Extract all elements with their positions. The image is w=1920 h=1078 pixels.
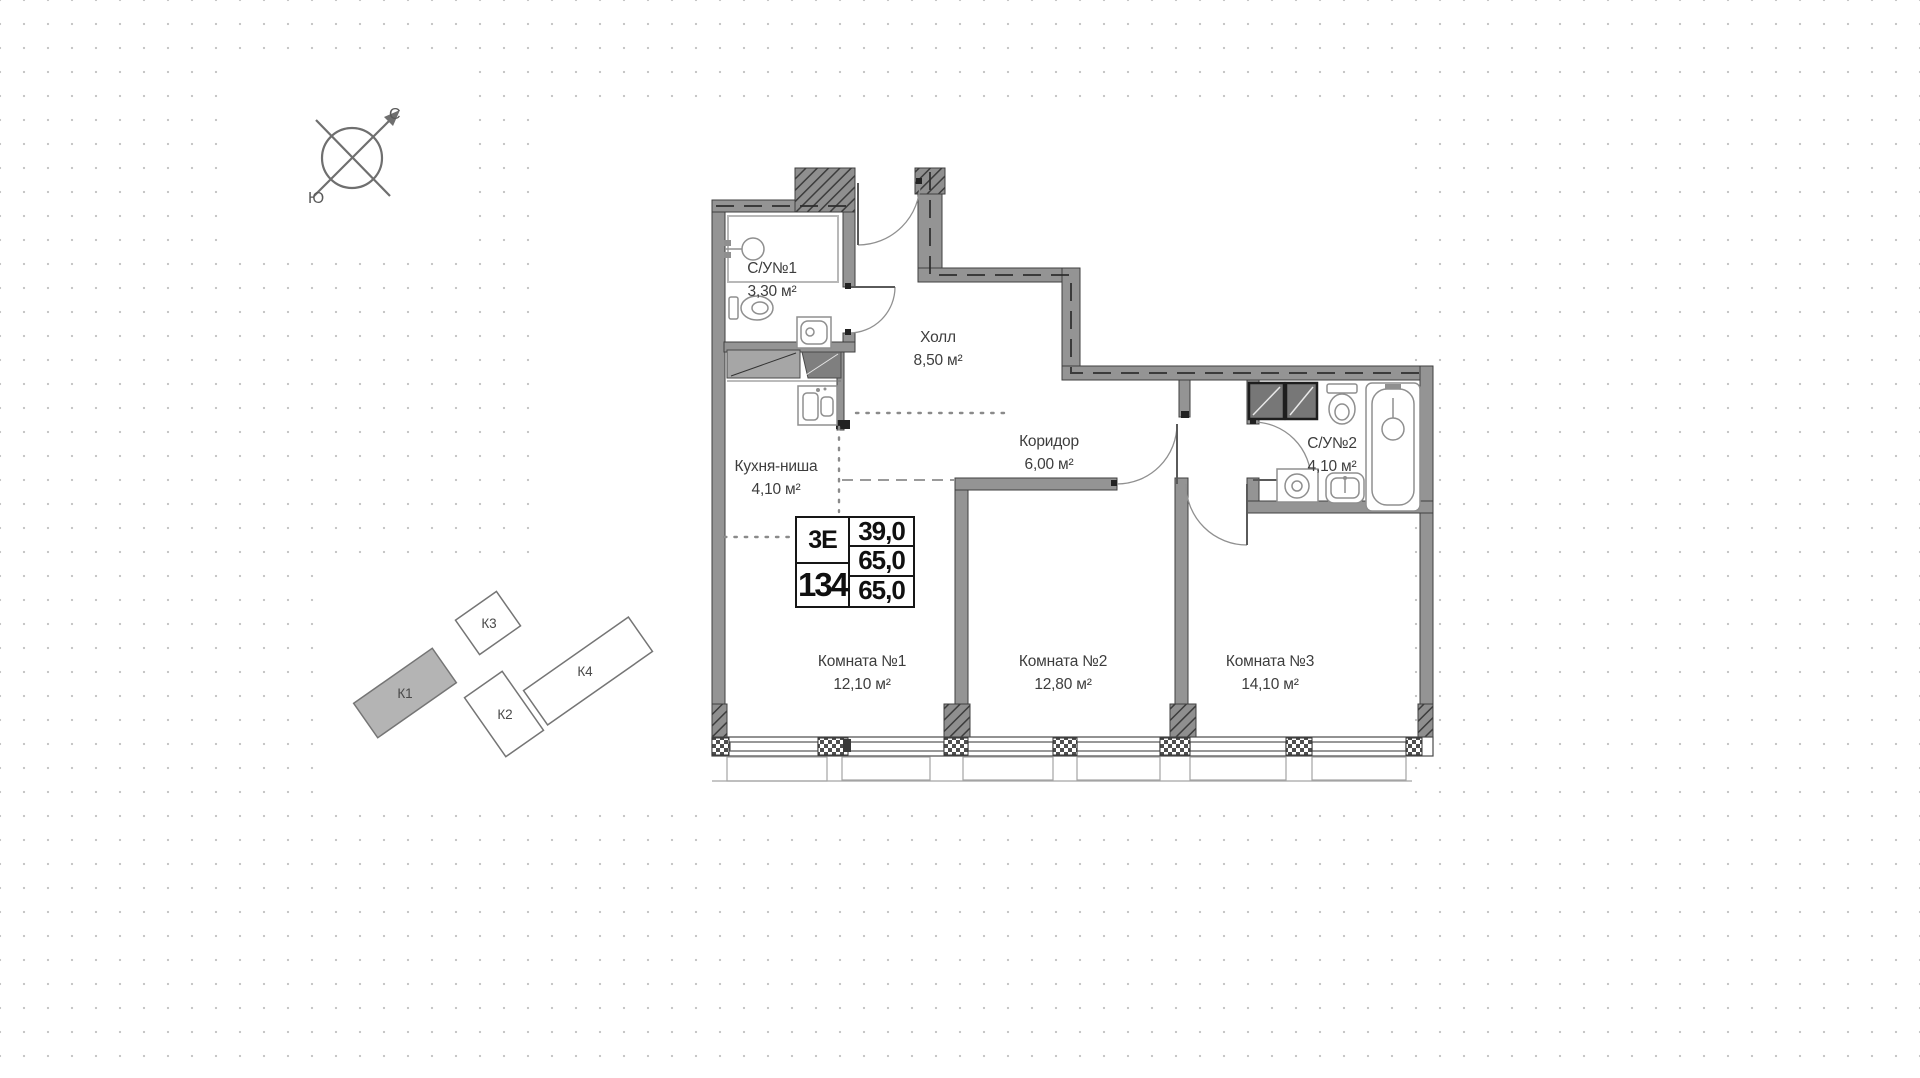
plan-drawing: С Ю К1 К2 К3 К4 bbox=[0, 0, 1920, 1078]
compass-rose bbox=[314, 110, 400, 196]
building-k1-label: К1 bbox=[397, 686, 412, 701]
balcony-door-threshold bbox=[843, 739, 851, 752]
window-pier-checker bbox=[944, 738, 968, 755]
spec-value-bottom: 65,0 bbox=[850, 575, 913, 604]
room-area: 8,50 м² bbox=[914, 349, 963, 372]
room3-door-arc bbox=[1186, 484, 1247, 545]
room-label-room3: Комната №3 14,10 м² bbox=[1226, 650, 1314, 697]
room-name: Холл bbox=[914, 326, 963, 349]
window-room2-left bbox=[968, 742, 1053, 751]
room-name: Комната №2 bbox=[1019, 650, 1107, 673]
building-k2-label: К2 bbox=[497, 707, 512, 722]
wall-partition-room2-room3 bbox=[1175, 478, 1188, 737]
window-pier-checker bbox=[1286, 738, 1312, 755]
spec-left-column: 3Е 134 bbox=[797, 518, 850, 606]
room-name: С/У№2 bbox=[1307, 432, 1357, 455]
room-area: 14,10 м² bbox=[1226, 673, 1314, 696]
toilet2-icon bbox=[1327, 384, 1357, 424]
room-label-hall: Холл 8,50 м² bbox=[914, 326, 963, 373]
building-k4-label: К4 bbox=[577, 664, 593, 679]
room-name: Кухня-ниша bbox=[735, 455, 818, 478]
wall-corridor-bottom bbox=[955, 478, 1117, 490]
room-label-kitchen-niche: Кухня-ниша 4,10 м² bbox=[735, 455, 818, 502]
window-room1-right bbox=[848, 742, 944, 751]
bottom-facade bbox=[712, 737, 1433, 781]
balcony-outline bbox=[963, 757, 1053, 780]
room-area: 12,10 м² bbox=[818, 673, 906, 696]
room-area: 12,80 м² bbox=[1019, 673, 1107, 696]
window-room3-left bbox=[1190, 742, 1286, 751]
wall-left-outer bbox=[712, 200, 725, 745]
room-area: 6,00 м² bbox=[1019, 453, 1079, 476]
room-area: 4,10 м² bbox=[1307, 455, 1357, 478]
window-pier-checker bbox=[1053, 738, 1077, 755]
window-room1-left bbox=[730, 742, 818, 751]
bathtub-icon bbox=[1366, 383, 1420, 511]
entrance-door-arc bbox=[858, 183, 920, 245]
spec-right-column: 39,0 65,0 65,0 bbox=[850, 518, 913, 606]
compass-south-label: Ю bbox=[308, 190, 324, 207]
room-name: С/У№1 bbox=[747, 257, 797, 280]
site-map bbox=[354, 591, 653, 756]
room-name: Комната №3 bbox=[1226, 650, 1314, 673]
room-label-room1: Комната №1 12,10 м² bbox=[818, 650, 906, 697]
spec-value-top: 39,0 bbox=[850, 518, 913, 545]
room-label-room2: Комната №2 12,80 м² bbox=[1019, 650, 1107, 697]
spec-value-mid: 65,0 bbox=[850, 545, 913, 574]
layout-type: 3Е bbox=[797, 518, 848, 564]
wall-bathroom1-right bbox=[843, 212, 855, 287]
bathroom1-door-arc bbox=[849, 287, 895, 333]
pillar-room1-room2-hatched bbox=[944, 704, 970, 737]
window-room3-right bbox=[1312, 742, 1406, 751]
window-pier-checker bbox=[712, 738, 729, 755]
washing-machine1-icon bbox=[797, 317, 831, 348]
balcony-outline bbox=[1077, 757, 1160, 780]
room-label-bathroom2: С/У№2 4,10 м² bbox=[1307, 432, 1357, 479]
wall-right-outer bbox=[1420, 366, 1433, 745]
balcony-outline bbox=[727, 757, 827, 781]
window-pier-checker bbox=[1406, 738, 1422, 755]
room-label-corridor: Коридор 6,00 м² bbox=[1019, 430, 1079, 477]
building-k3-label: К3 bbox=[481, 616, 496, 631]
room-area: 4,10 м² bbox=[735, 478, 818, 501]
room-area: 3,30 м² bbox=[747, 280, 797, 303]
room-name: Коридор bbox=[1019, 430, 1079, 453]
room-label-bathroom1: С/У№1 3,30 м² bbox=[747, 257, 797, 304]
corner-pillar-right-hatched bbox=[1418, 704, 1433, 737]
apartment-number: 134 bbox=[797, 564, 848, 606]
compass-north-label: С bbox=[389, 106, 401, 123]
apartment-spec-table: 3Е 134 39,0 65,0 65,0 bbox=[795, 516, 915, 608]
window-room2-right bbox=[1077, 742, 1160, 751]
floor-plan-page: С Ю К1 К2 К3 К4 bbox=[0, 0, 1920, 1078]
balcony-outline bbox=[842, 757, 930, 780]
wardrobe-blocks bbox=[727, 350, 841, 381]
room2-door-arc bbox=[1117, 424, 1177, 484]
wall-partition-room1-room2 bbox=[955, 478, 968, 737]
balcony-outline bbox=[1312, 757, 1406, 780]
balcony-outline bbox=[1190, 757, 1286, 780]
pillar-room2-room3-hatched bbox=[1170, 704, 1196, 737]
room-name: Комната №1 bbox=[818, 650, 906, 673]
window-pier-checker bbox=[1160, 738, 1190, 755]
kitchen-sink-icon bbox=[798, 386, 837, 425]
ventilation-shaft bbox=[1249, 383, 1317, 419]
corner-pillar-left-hatched bbox=[712, 704, 727, 737]
